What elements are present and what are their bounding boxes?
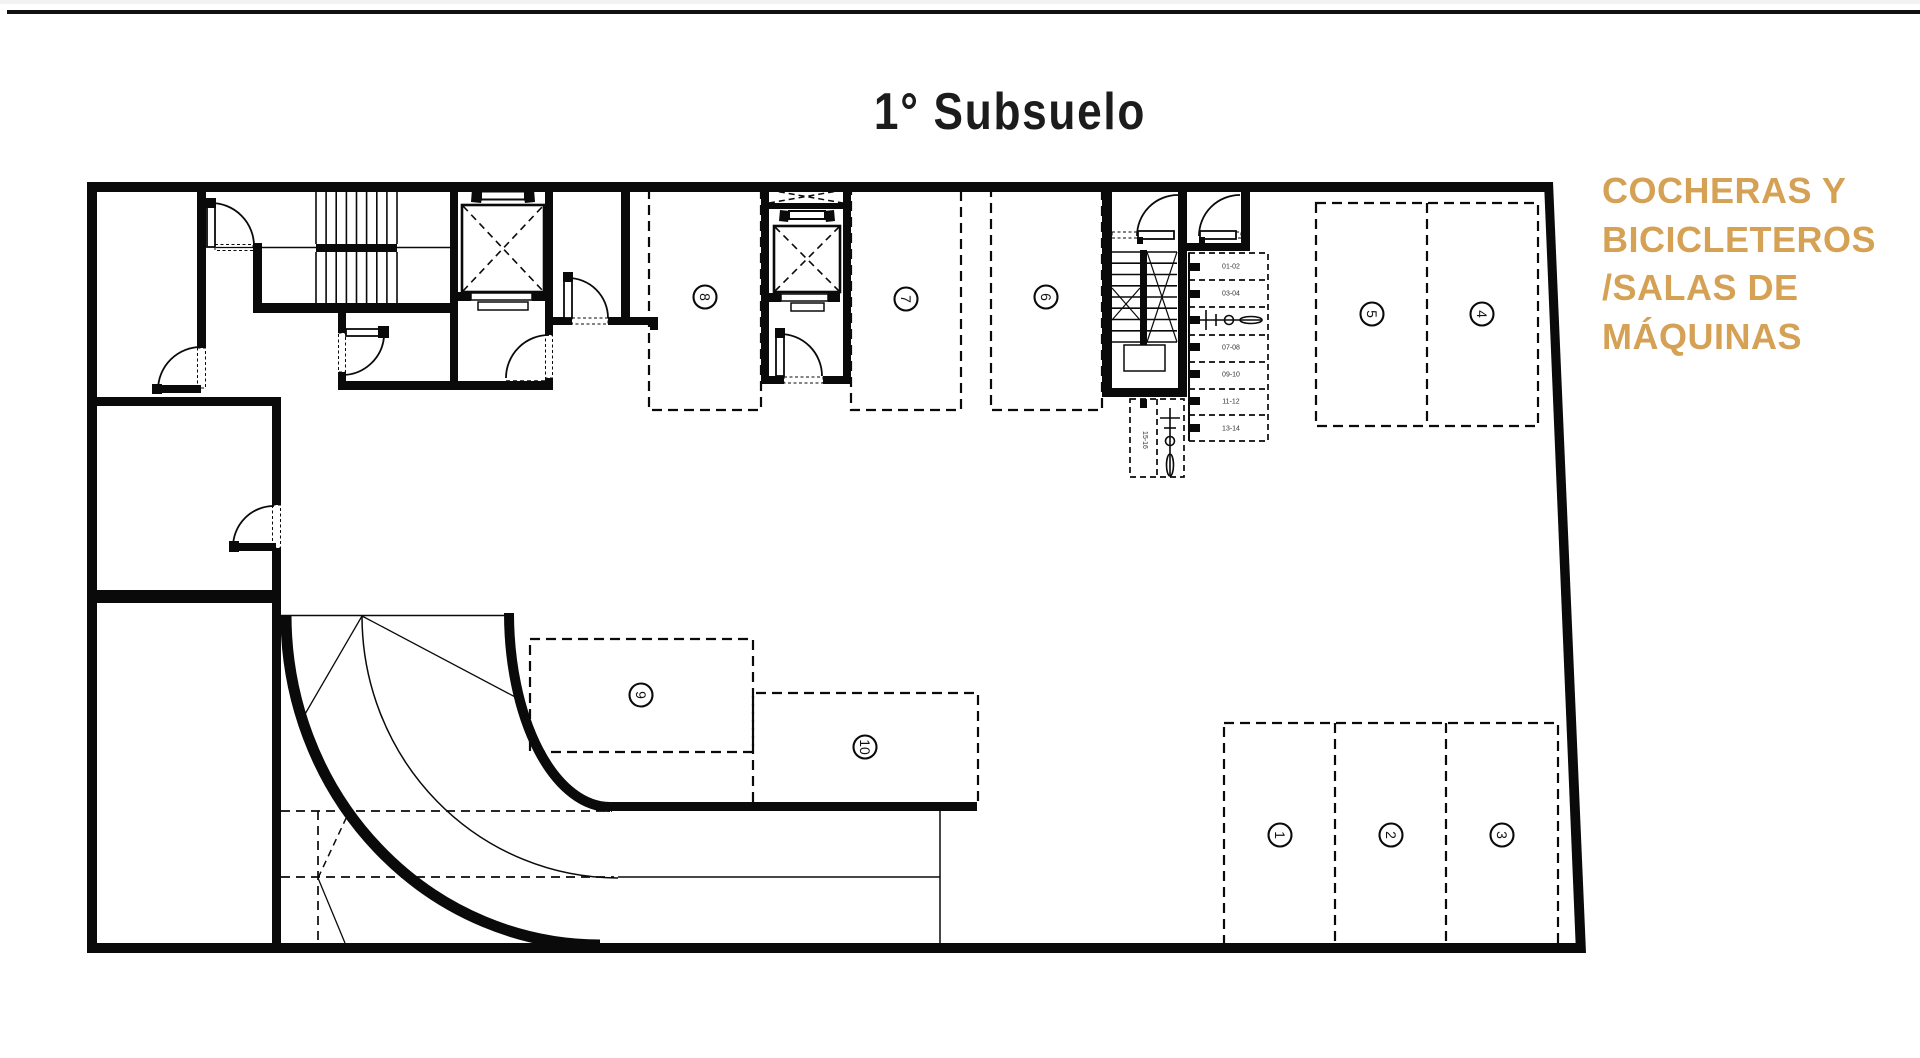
svg-text:2: 2 [1383, 831, 1399, 839]
svg-text:15-16: 15-16 [1141, 431, 1148, 449]
svg-text:13-14: 13-14 [1222, 426, 1240, 433]
svg-text:4: 4 [1474, 310, 1490, 318]
svg-text:03-04: 03-04 [1222, 291, 1240, 298]
svg-text:5: 5 [1364, 310, 1380, 318]
svg-text:09-10: 09-10 [1222, 372, 1240, 379]
svg-text:07-08: 07-08 [1222, 345, 1240, 352]
svg-text:8: 8 [697, 293, 713, 301]
svg-text:11-12: 11-12 [1222, 399, 1239, 406]
svg-text:3: 3 [1494, 831, 1510, 839]
svg-text:01-02: 01-02 [1222, 264, 1240, 271]
svg-text:10: 10 [857, 739, 873, 755]
svg-text:7: 7 [898, 295, 914, 303]
svg-text:6: 6 [1038, 293, 1054, 301]
svg-text:1: 1 [1272, 831, 1288, 839]
svg-text:9: 9 [633, 691, 649, 699]
